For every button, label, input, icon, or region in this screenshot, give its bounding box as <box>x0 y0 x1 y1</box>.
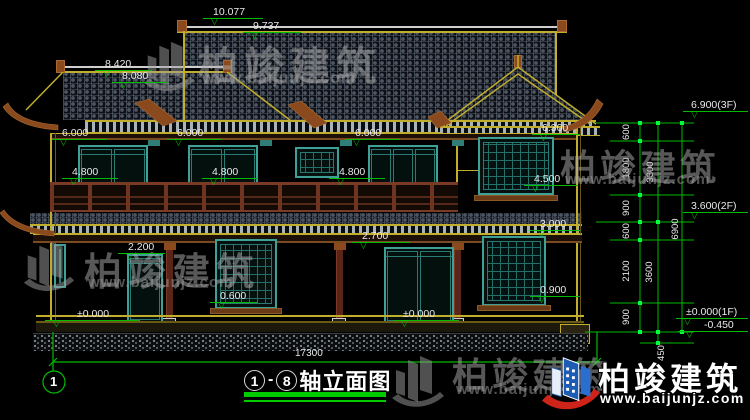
elevation-marker: 6.000▽ <box>52 127 107 140</box>
elevation-marker: -0.450▽ <box>678 319 748 332</box>
watermark-site: www.baijunjz.com <box>565 171 710 188</box>
dim-6900: 6900 <box>670 207 682 251</box>
elevation-marker: 6.000▽ <box>345 127 400 140</box>
elevation-marker: 0.900▽ <box>530 284 580 297</box>
dim-900: 900 <box>621 295 633 339</box>
elevation-marker: ±0.000(1F)▽ <box>676 306 748 319</box>
elevation-drawing-canvas: 600 1800 900 600 2100 900 3300 3600 6900… <box>0 0 750 420</box>
watermark-site: www.baijunjz.com <box>202 70 356 88</box>
brand-logo-icon <box>540 350 602 416</box>
dim-17300: 17300 <box>295 348 323 359</box>
elevation-marker: 6.900(3F)▽ <box>683 99 748 112</box>
elevation-marker: ±0.000▽ <box>393 308 459 321</box>
title-axis-from: 1 <box>244 370 265 391</box>
elevation-marker: 3.000▽ <box>530 218 580 231</box>
watermark-site: www.baijunjz.com <box>88 274 233 291</box>
elevation-marker: 3.600(2F)▽ <box>683 200 748 213</box>
title-axis-to: 8 <box>276 370 297 391</box>
elevation-marker: 4.800▽ <box>62 166 118 179</box>
elevation-marker: 4.800▽ <box>329 166 385 179</box>
axis-bubble-1: 1 <box>50 374 57 389</box>
elevation-marker: 8.080▽ <box>112 70 168 83</box>
title-dash: - <box>268 371 273 389</box>
elevation-marker: ±0.000▽ <box>45 308 140 321</box>
elevation-marker: 10.077▽ <box>203 6 263 19</box>
title-underline-thick <box>244 392 386 397</box>
elevation-marker: 0.600▽ <box>210 290 258 303</box>
elevation-marker: 4.500▽ <box>524 173 578 186</box>
dim-2100: 2100 <box>621 249 633 293</box>
dim-600: 600 <box>621 209 633 253</box>
elevation-marker: 4.800▽ <box>202 166 258 179</box>
watermark-logo-icon <box>385 352 451 412</box>
elevation-marker: 6.000▽ <box>167 127 222 140</box>
title-underline-thin <box>244 400 386 402</box>
elevation-marker: 2.700▽ <box>352 230 410 243</box>
elevation-marker: 6.300▽ <box>532 122 580 135</box>
elevation-marker: 2.200▽ <box>118 241 165 254</box>
dim-3600: 3600 <box>644 250 656 294</box>
elevation-marker: 9.737▽ <box>243 20 301 33</box>
watermark-logo-icon <box>18 238 80 296</box>
brand-logo-site: www.baijunjz.com <box>600 390 745 406</box>
